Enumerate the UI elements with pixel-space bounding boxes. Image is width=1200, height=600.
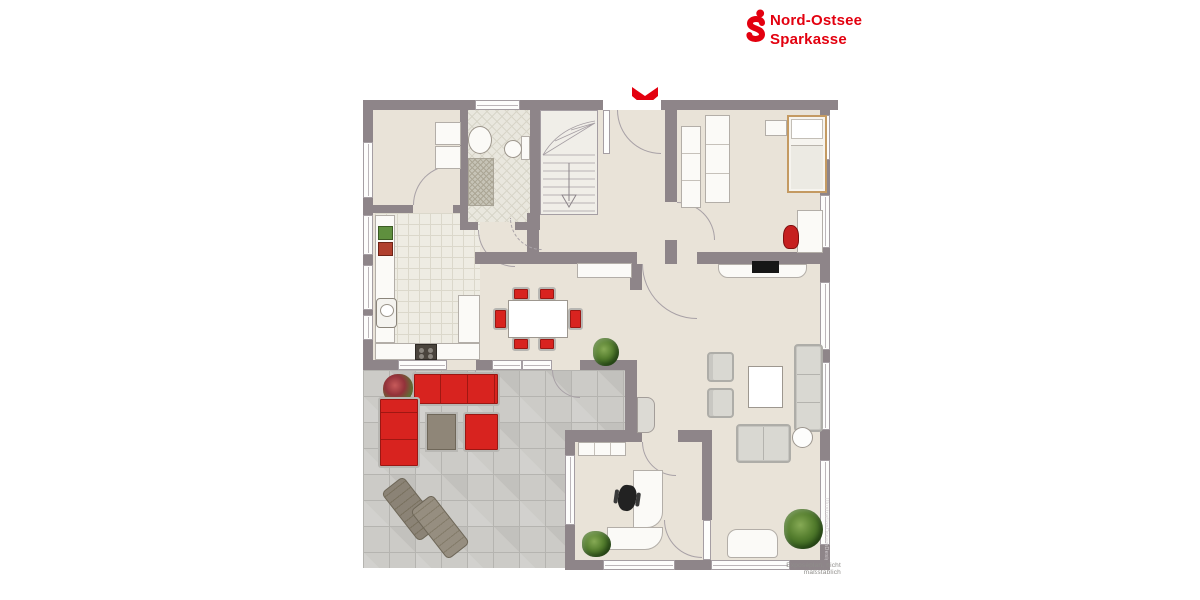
pillow	[791, 119, 823, 139]
dryer	[435, 146, 461, 169]
office-chair	[612, 482, 642, 515]
bath-sink	[468, 126, 492, 154]
window	[363, 215, 373, 255]
wall-segment	[363, 100, 475, 110]
armchair	[707, 352, 734, 382]
dining-chair	[493, 308, 508, 330]
nightstand	[765, 120, 787, 136]
terrace-french-door	[522, 360, 552, 370]
front-door-leaf	[603, 110, 610, 154]
wall-segment	[363, 110, 373, 142]
sparkasse-s-icon	[744, 8, 768, 44]
side-table-round	[792, 427, 813, 448]
fireplace	[637, 397, 655, 433]
wall-segment	[520, 100, 603, 110]
wall-segment	[820, 248, 830, 282]
wall-segment	[665, 110, 677, 202]
page: Nord-Ostsee Sparkasse	[0, 0, 1200, 600]
study-door-leaf	[703, 520, 711, 560]
large-plant	[784, 509, 823, 549]
toilet	[504, 140, 522, 158]
shower	[468, 158, 494, 206]
kitchen-shelf-item	[378, 226, 393, 240]
window	[820, 282, 830, 350]
desk-chair-red	[783, 225, 799, 249]
shelf	[578, 442, 626, 456]
dining-chair	[512, 337, 530, 351]
wall-segment	[476, 360, 492, 370]
outdoor-coffee-table	[425, 412, 458, 452]
dining-chair	[568, 308, 583, 330]
stairs-detail	[541, 111, 597, 214]
dining-chair	[538, 287, 556, 301]
office-desk	[607, 527, 663, 550]
desk	[797, 210, 823, 253]
wall-segment	[453, 205, 460, 213]
logo-line1: Nord-Ostsee	[770, 11, 862, 30]
burner	[428, 354, 433, 359]
wardrobe	[681, 126, 701, 208]
sideboard	[577, 263, 632, 278]
floor-plan: IllustrationDreamDesign	[363, 100, 838, 570]
logo: Nord-Ostsee Sparkasse	[770, 11, 862, 49]
burner	[419, 354, 424, 359]
window	[363, 315, 373, 340]
wall-segment	[460, 110, 468, 230]
bed	[787, 115, 827, 193]
burner	[428, 348, 433, 353]
sofa-three-seater	[794, 344, 823, 432]
wall-segment	[530, 110, 540, 230]
wall-segment	[820, 430, 830, 460]
dining-chair	[512, 287, 530, 301]
wall-segment	[665, 240, 677, 264]
sofa-two-seater	[736, 424, 791, 463]
window	[565, 455, 575, 525]
bench	[727, 529, 778, 558]
window	[363, 142, 373, 198]
window	[398, 360, 447, 370]
wall-segment	[661, 100, 838, 110]
outdoor-armchair	[463, 412, 500, 452]
kitchen-counter	[458, 295, 480, 343]
wall-segment	[363, 205, 413, 213]
outdoor-sofa-two-seater	[378, 397, 420, 468]
window	[475, 100, 520, 110]
wall-segment	[565, 430, 642, 442]
outdoor-sofa-three-seater	[412, 372, 500, 406]
watermark-text: IllustrationDreamDesign	[823, 498, 829, 560]
wall-segment	[363, 255, 373, 265]
burner	[419, 348, 424, 353]
wall-segment	[460, 222, 478, 230]
wall-segment	[820, 100, 830, 115]
kitchen-sink	[376, 298, 397, 328]
wall-segment	[363, 360, 398, 370]
washing-machine	[435, 122, 461, 145]
logo-line2: Sparkasse	[770, 30, 862, 49]
stove	[415, 344, 437, 360]
window	[363, 265, 373, 310]
wall-segment	[702, 442, 712, 520]
toilet-tank	[521, 136, 530, 160]
wall-segment	[565, 560, 603, 570]
plant	[582, 531, 611, 557]
terrace-french-door	[492, 360, 522, 370]
tv	[752, 261, 779, 273]
duvet	[791, 145, 823, 189]
entrance-opening	[603, 100, 661, 110]
plant	[593, 338, 619, 366]
kitchen-shelf-item	[378, 242, 393, 256]
dining-chair	[538, 337, 556, 351]
office-chair-seat	[616, 484, 637, 512]
armchair	[707, 388, 734, 418]
wall-segment	[675, 560, 711, 570]
wall-segment	[678, 430, 712, 442]
coffee-table	[748, 366, 783, 408]
wardrobe	[705, 115, 730, 203]
disclaimer-text: Exposéplan, nicht maßstäblich	[755, 562, 841, 576]
wall-segment	[625, 360, 637, 440]
dining-table	[508, 300, 568, 338]
window	[603, 560, 675, 570]
staircase	[540, 110, 598, 215]
sink-basin	[380, 304, 394, 317]
